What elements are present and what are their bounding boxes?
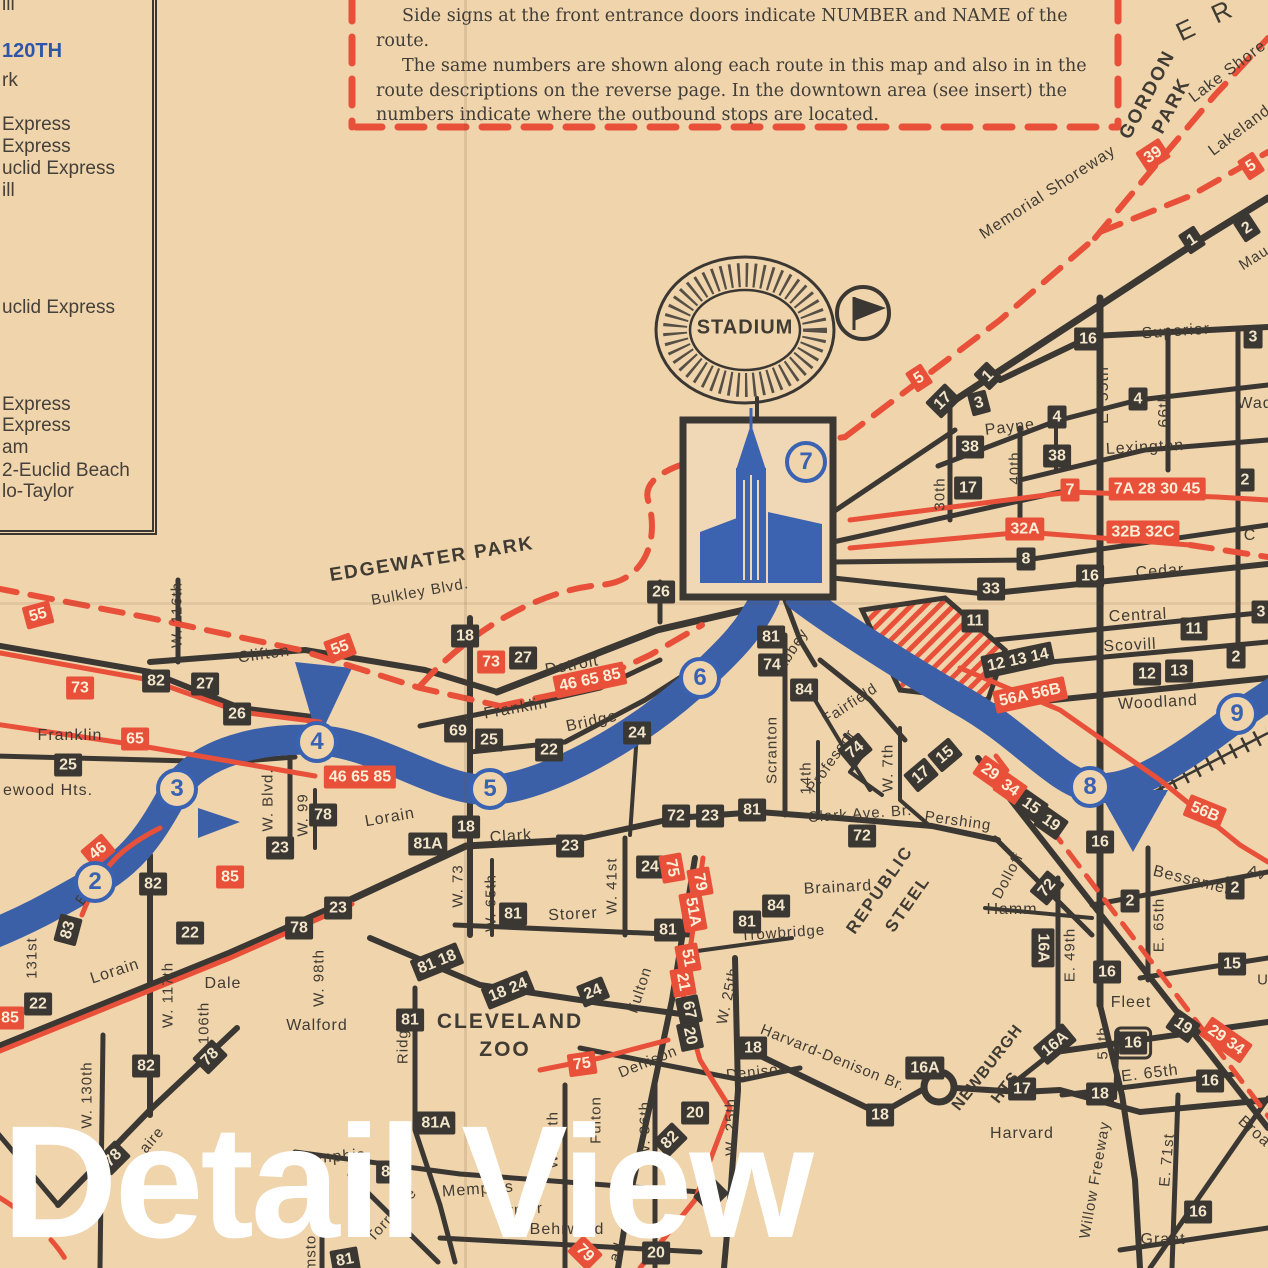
route-number-badge: 4	[1129, 388, 1148, 411]
route-number-badge: 13	[1165, 660, 1193, 683]
route-number-badge: 23	[266, 837, 294, 860]
route-number-badge: 16A	[905, 1057, 944, 1080]
route-number-badge: 78	[309, 804, 337, 827]
route-number-badge: 2	[1227, 646, 1246, 669]
route-number-badge: 38	[956, 436, 984, 459]
route-number-badge: 17	[954, 477, 982, 500]
route-number-badge: 74	[758, 654, 786, 677]
street-label: 66th	[1156, 392, 1174, 427]
route-terminal-circle: 4	[296, 721, 338, 763]
legend-item: uclid Express	[2, 158, 115, 180]
street-label: Franklin	[38, 727, 103, 745]
route-number-badge: 72	[662, 805, 690, 828]
route-number-badge: 81	[738, 799, 766, 822]
route-number-badge: 2	[1226, 877, 1245, 900]
street-label: W. 65th	[483, 874, 500, 932]
legend-item: 2-Euclid Beach	[2, 460, 130, 482]
route-terminal-circle: 3	[156, 768, 198, 810]
legend-item: 120TH	[2, 40, 62, 63]
street-label: 30th	[932, 477, 949, 510]
street-label: E. 49th	[1062, 928, 1079, 983]
route-number-badge: 18	[451, 625, 479, 648]
street-label: W. 73	[450, 864, 467, 907]
street-label: Fleet	[1111, 994, 1152, 1012]
route-number-badge: 12	[1133, 663, 1161, 686]
street-label: W. 7th	[880, 744, 897, 793]
street-label: Grant	[1140, 1231, 1185, 1249]
flag-icon	[837, 287, 889, 339]
street-label: Harvard	[990, 1125, 1054, 1143]
legend-item: ill	[2, 180, 15, 202]
route-number-badge: 26	[647, 581, 675, 604]
route-number-badge: 16	[1196, 1070, 1224, 1093]
street-label: W. Blvd.	[260, 768, 277, 831]
route-number-badge: 11	[1181, 618, 1208, 641]
street-label: Central	[1108, 605, 1167, 626]
route-number-badge: 32B 32C	[1106, 521, 1179, 544]
route-number-badge: 25	[54, 754, 82, 777]
street-label: Clark	[489, 827, 532, 848]
street-label: Dale	[205, 975, 242, 993]
route-number-badge: 25	[475, 729, 503, 752]
route-number-badge: 18	[866, 1104, 894, 1127]
zoo-label: ZOO	[479, 1038, 531, 1062]
instruction-box: Side signs at the front entrance doors i…	[376, 4, 1100, 128]
route-number-badge: 69	[444, 720, 472, 743]
route-number-badge: 21	[669, 966, 696, 997]
street-label: W. 116th	[169, 582, 186, 648]
route-number-badge: 81	[654, 919, 682, 942]
fold-crease	[0, 602, 1268, 605]
street-label: Scranton	[764, 716, 781, 784]
instruction-paragraph: The same numbers are shown along each ro…	[376, 54, 1100, 129]
route-number-badge: 16	[1184, 1201, 1212, 1224]
route-terminal-circle: 2	[74, 861, 116, 903]
detail-view-watermark: Detail View	[2, 1102, 811, 1262]
street-label: Scovill	[1103, 636, 1157, 657]
route-number-badge: 72	[848, 825, 876, 848]
street-label: Wad	[1237, 395, 1268, 413]
transit-map-page: ill120THrkExpressExpressuclid Expressill…	[0, 0, 1268, 1268]
zoo-label: CLEVELAND	[437, 1010, 583, 1034]
route-terminal-circle: 8	[1069, 766, 1111, 808]
legend-item: rk	[2, 70, 18, 92]
route-number-badge: 85	[216, 866, 244, 889]
stadium-label: STADIUM	[697, 317, 794, 340]
legend-item: Express	[2, 136, 71, 158]
route-number-badge: 27	[191, 673, 219, 696]
street-label: Storer	[548, 905, 598, 926]
street-label: 131st	[24, 937, 41, 979]
legend-item: Express	[2, 114, 71, 136]
route-number-badge: 7A 28 30 45	[1109, 478, 1206, 501]
street-label: Walford	[286, 1017, 348, 1035]
route-number-badge: 16	[1076, 565, 1104, 588]
street-label: E. 55th	[1095, 366, 1113, 424]
route-number-badge: 22	[176, 922, 204, 945]
route-number-badge: 26	[223, 703, 251, 726]
route-number-badge: 7	[1061, 479, 1080, 502]
route-number-badge: 81A	[408, 833, 447, 856]
route-number-badge: 81	[396, 1009, 424, 1032]
route-number-badge: 81	[499, 903, 527, 926]
legend-item: ill	[2, 0, 15, 16]
street-label: U	[1257, 972, 1268, 989]
route-number-badge: 16	[1119, 1032, 1147, 1055]
route-number-badge: 17	[1008, 1078, 1036, 1101]
route-number-badge: 16	[1086, 831, 1114, 854]
route-number-badge: 3	[1252, 601, 1268, 624]
route-number-badge: 8	[1017, 548, 1036, 571]
route-number-badge: 22	[535, 739, 563, 762]
street-label: Cedar	[1135, 561, 1185, 582]
route-number-badge: 84	[790, 679, 818, 702]
street-label: W. 41st	[604, 857, 621, 914]
route-number-badge: 85	[0, 1007, 24, 1030]
route-number-badge: 15	[1218, 953, 1246, 976]
street-label: E. 65th	[1151, 898, 1168, 953]
instruction-paragraph: Side signs at the front entrance doors i…	[376, 4, 1100, 54]
route-number-badge: 23	[556, 835, 584, 858]
legend-item: am	[2, 437, 28, 459]
route-number-badge: 38	[1043, 445, 1071, 468]
route-number-badge: 32A	[1005, 518, 1044, 541]
route-number-badge: 27	[509, 647, 537, 670]
route-number-badge: 65	[121, 728, 149, 751]
route-number-badge: 81	[757, 626, 785, 649]
route-number-badge: 24	[623, 722, 651, 745]
route-number-badge: 33	[977, 578, 1005, 601]
red-routes	[0, 0, 1268, 1268]
legend-item: lo-Taylor	[2, 481, 74, 503]
street-label: W. 98th	[311, 949, 328, 1007]
route-number-badge: 3	[1244, 326, 1263, 349]
route-number-badge: 18	[1086, 1083, 1114, 1106]
street-label: W. 117th	[160, 962, 177, 1028]
street-label: ewood Hts.	[3, 782, 93, 800]
map-artwork	[0, 0, 1268, 1268]
route-terminal-circle: 9	[1216, 693, 1258, 735]
route-legend-panel: ill120THrkExpressExpressuclid Expressill…	[0, 0, 157, 535]
street-label: 106th	[196, 1002, 213, 1045]
route-number-badge: 2	[1121, 890, 1140, 913]
legend-item: uclid Express	[2, 297, 115, 319]
route-number-badge: 75	[567, 1051, 598, 1078]
route-number-badge: 82	[142, 670, 170, 693]
street-label: 40th	[1007, 451, 1024, 484]
route-number-badge: 84	[762, 895, 790, 918]
route-number-badge: 2	[1236, 469, 1255, 492]
route-number-badge: 18	[739, 1037, 767, 1060]
route-number-badge: 73	[66, 677, 94, 700]
route-number-badge: 18	[452, 816, 480, 839]
route-number-badge: 73	[477, 651, 505, 674]
route-number-badge: 75	[658, 852, 685, 883]
route-terminal-circle: 7	[785, 441, 827, 483]
route-number-badge: 22	[24, 993, 52, 1016]
route-number-badge: 16	[1074, 328, 1102, 351]
route-number-badge: 23	[324, 897, 352, 920]
legend-item: Express	[2, 394, 71, 416]
route-number-badge: 16	[1093, 961, 1121, 984]
street-label: Hamm	[986, 901, 1037, 919]
downtown-inset-box	[683, 408, 833, 597]
route-number-badge: 16A	[1032, 928, 1055, 967]
route-number-badge: 81	[733, 911, 761, 934]
route-number-badge: 23	[696, 805, 724, 828]
route-number-badge: 4	[1048, 406, 1067, 429]
route-number-badge: 11	[962, 610, 989, 633]
route-terminal-circle: 6	[679, 657, 721, 699]
route-terminal-circle: 5	[469, 768, 511, 810]
route-number-badge: 78	[285, 917, 313, 940]
route-number-badge: 82	[132, 1055, 160, 1078]
street-label: 57th	[1095, 1026, 1112, 1059]
route-number-badge: 46 65 85	[324, 766, 396, 789]
route-number-badge: 82	[139, 873, 167, 896]
street-label: C	[1244, 527, 1257, 545]
legend-item: Express	[2, 415, 71, 437]
